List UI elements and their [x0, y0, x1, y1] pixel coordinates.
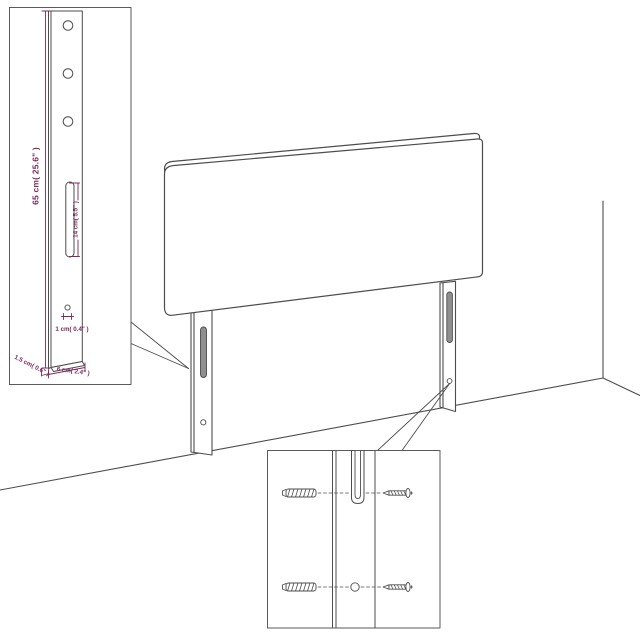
- wall-plug-icon: [283, 583, 317, 591]
- callout-line-left-bottom: [131, 344, 189, 369]
- screw-hole-3: [63, 117, 73, 127]
- headboard-panel: [165, 139, 483, 315]
- mount-hole: [351, 583, 359, 591]
- screw-head: [406, 583, 410, 592]
- left-leg-slot: [201, 327, 207, 378]
- right-leg-hole: [447, 379, 452, 384]
- label-hole-diameter: 1 cm( 0.4" ): [55, 326, 88, 333]
- headboard: [165, 133, 483, 315]
- hardware-detail-inset: [268, 451, 441, 629]
- diagram-page: 65 cm( 25.6" ) 14 cm( 5.5" ) 1 cm( 0.4" …: [0, 0, 640, 640]
- inset-border-bottom: [268, 451, 441, 629]
- left-leg-hole: [201, 420, 206, 425]
- screw-hole-1: [63, 21, 73, 31]
- wall-plug-icon: [283, 489, 317, 497]
- right-leg-slot: [447, 292, 453, 343]
- callout-lines: [131, 322, 450, 451]
- small-hole-detail: [65, 305, 70, 310]
- diagram-canvas: 65 cm( 25.6" ) 14 cm( 5.5" ) 1 cm( 0.4" …: [0, 0, 640, 640]
- headboard-left-leg: [191, 306, 212, 456]
- headboard-right-leg: [440, 281, 456, 411]
- screw-head: [406, 489, 410, 498]
- label-slot-length: 14 cm( 5.5" ): [73, 201, 80, 238]
- screw-hole-2: [63, 69, 73, 79]
- leg-detail-drawing: [49, 11, 85, 372]
- floor-line-right: [603, 378, 640, 396]
- callout-line-right-a: [378, 384, 450, 451]
- label-leg-height: 65 cm( 25.6" ): [31, 147, 41, 205]
- callout-line-left-top: [131, 322, 189, 369]
- callout-line-right-b: [402, 384, 450, 451]
- leg-dimension-inset: 65 cm( 25.6" ) 14 cm( 5.5" ) 1 cm( 0.4" …: [10, 8, 132, 385]
